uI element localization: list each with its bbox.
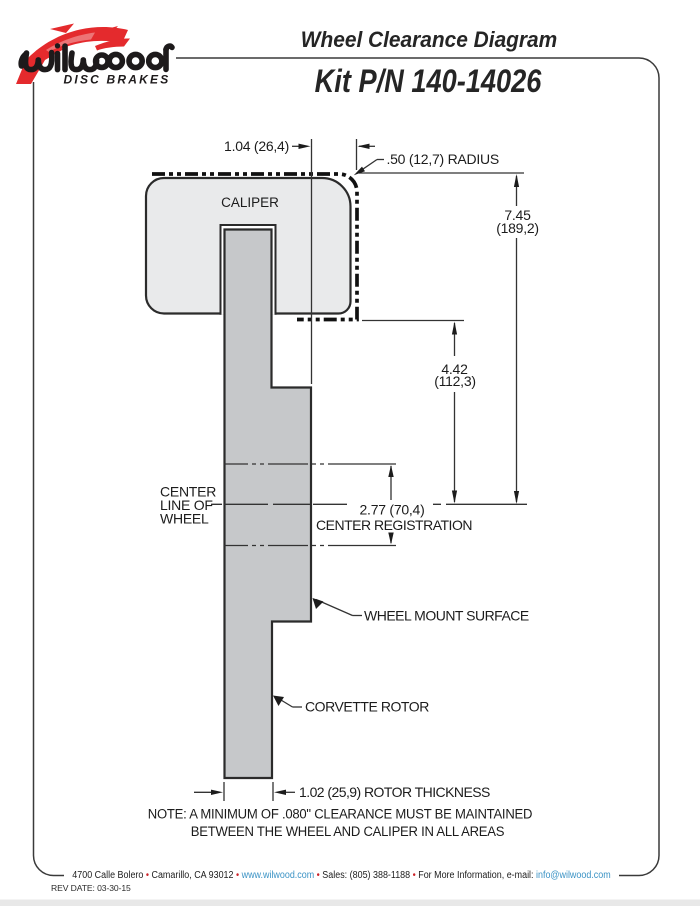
svg-text:BETWEEN THE WHEEL AND CALIPER: BETWEEN THE WHEEL AND CALIPER IN ALL ARE… (191, 824, 505, 839)
svg-text:1.02 (25,9) ROTOR THICKNESS: 1.02 (25,9) ROTOR THICKNESS (299, 784, 490, 800)
svg-text:DISC BRAKES: DISC BRAKES (64, 73, 171, 87)
svg-text:(189,2): (189,2) (496, 220, 539, 236)
svg-text:CORVETTE ROTOR: CORVETTE ROTOR (305, 699, 429, 715)
svg-text:WHEEL MOUNT SURFACE: WHEEL MOUNT SURFACE (364, 608, 529, 624)
svg-text:WHEEL: WHEEL (160, 511, 209, 527)
svg-text:4700 Calle Bolero • Camarillo,: 4700 Calle Bolero • Camarillo, CA 93012 … (72, 869, 610, 881)
svg-text:REV DATE: 03-30-15: REV DATE: 03-30-15 (51, 883, 131, 893)
svg-text:Kit P/N 140-14026: Kit P/N 140-14026 (315, 64, 542, 100)
svg-text:.50 (12,7) RADIUS: .50 (12,7) RADIUS (387, 151, 499, 167)
svg-text:Wheel Clearance Diagram: Wheel Clearance Diagram (301, 28, 557, 53)
svg-text:2.77 (70,4): 2.77 (70,4) (360, 502, 425, 518)
svg-text:CENTER REGISTRATION: CENTER REGISTRATION (316, 517, 472, 533)
svg-text:1.04 (26,4): 1.04 (26,4) (224, 138, 289, 154)
svg-text:(112,3): (112,3) (434, 373, 476, 389)
svg-text:NOTE: A MINIMUM OF .080" CLEAR: NOTE: A MINIMUM OF .080" CLEARANCE MUST … (148, 806, 532, 821)
svg-text:CALIPER: CALIPER (221, 195, 279, 210)
